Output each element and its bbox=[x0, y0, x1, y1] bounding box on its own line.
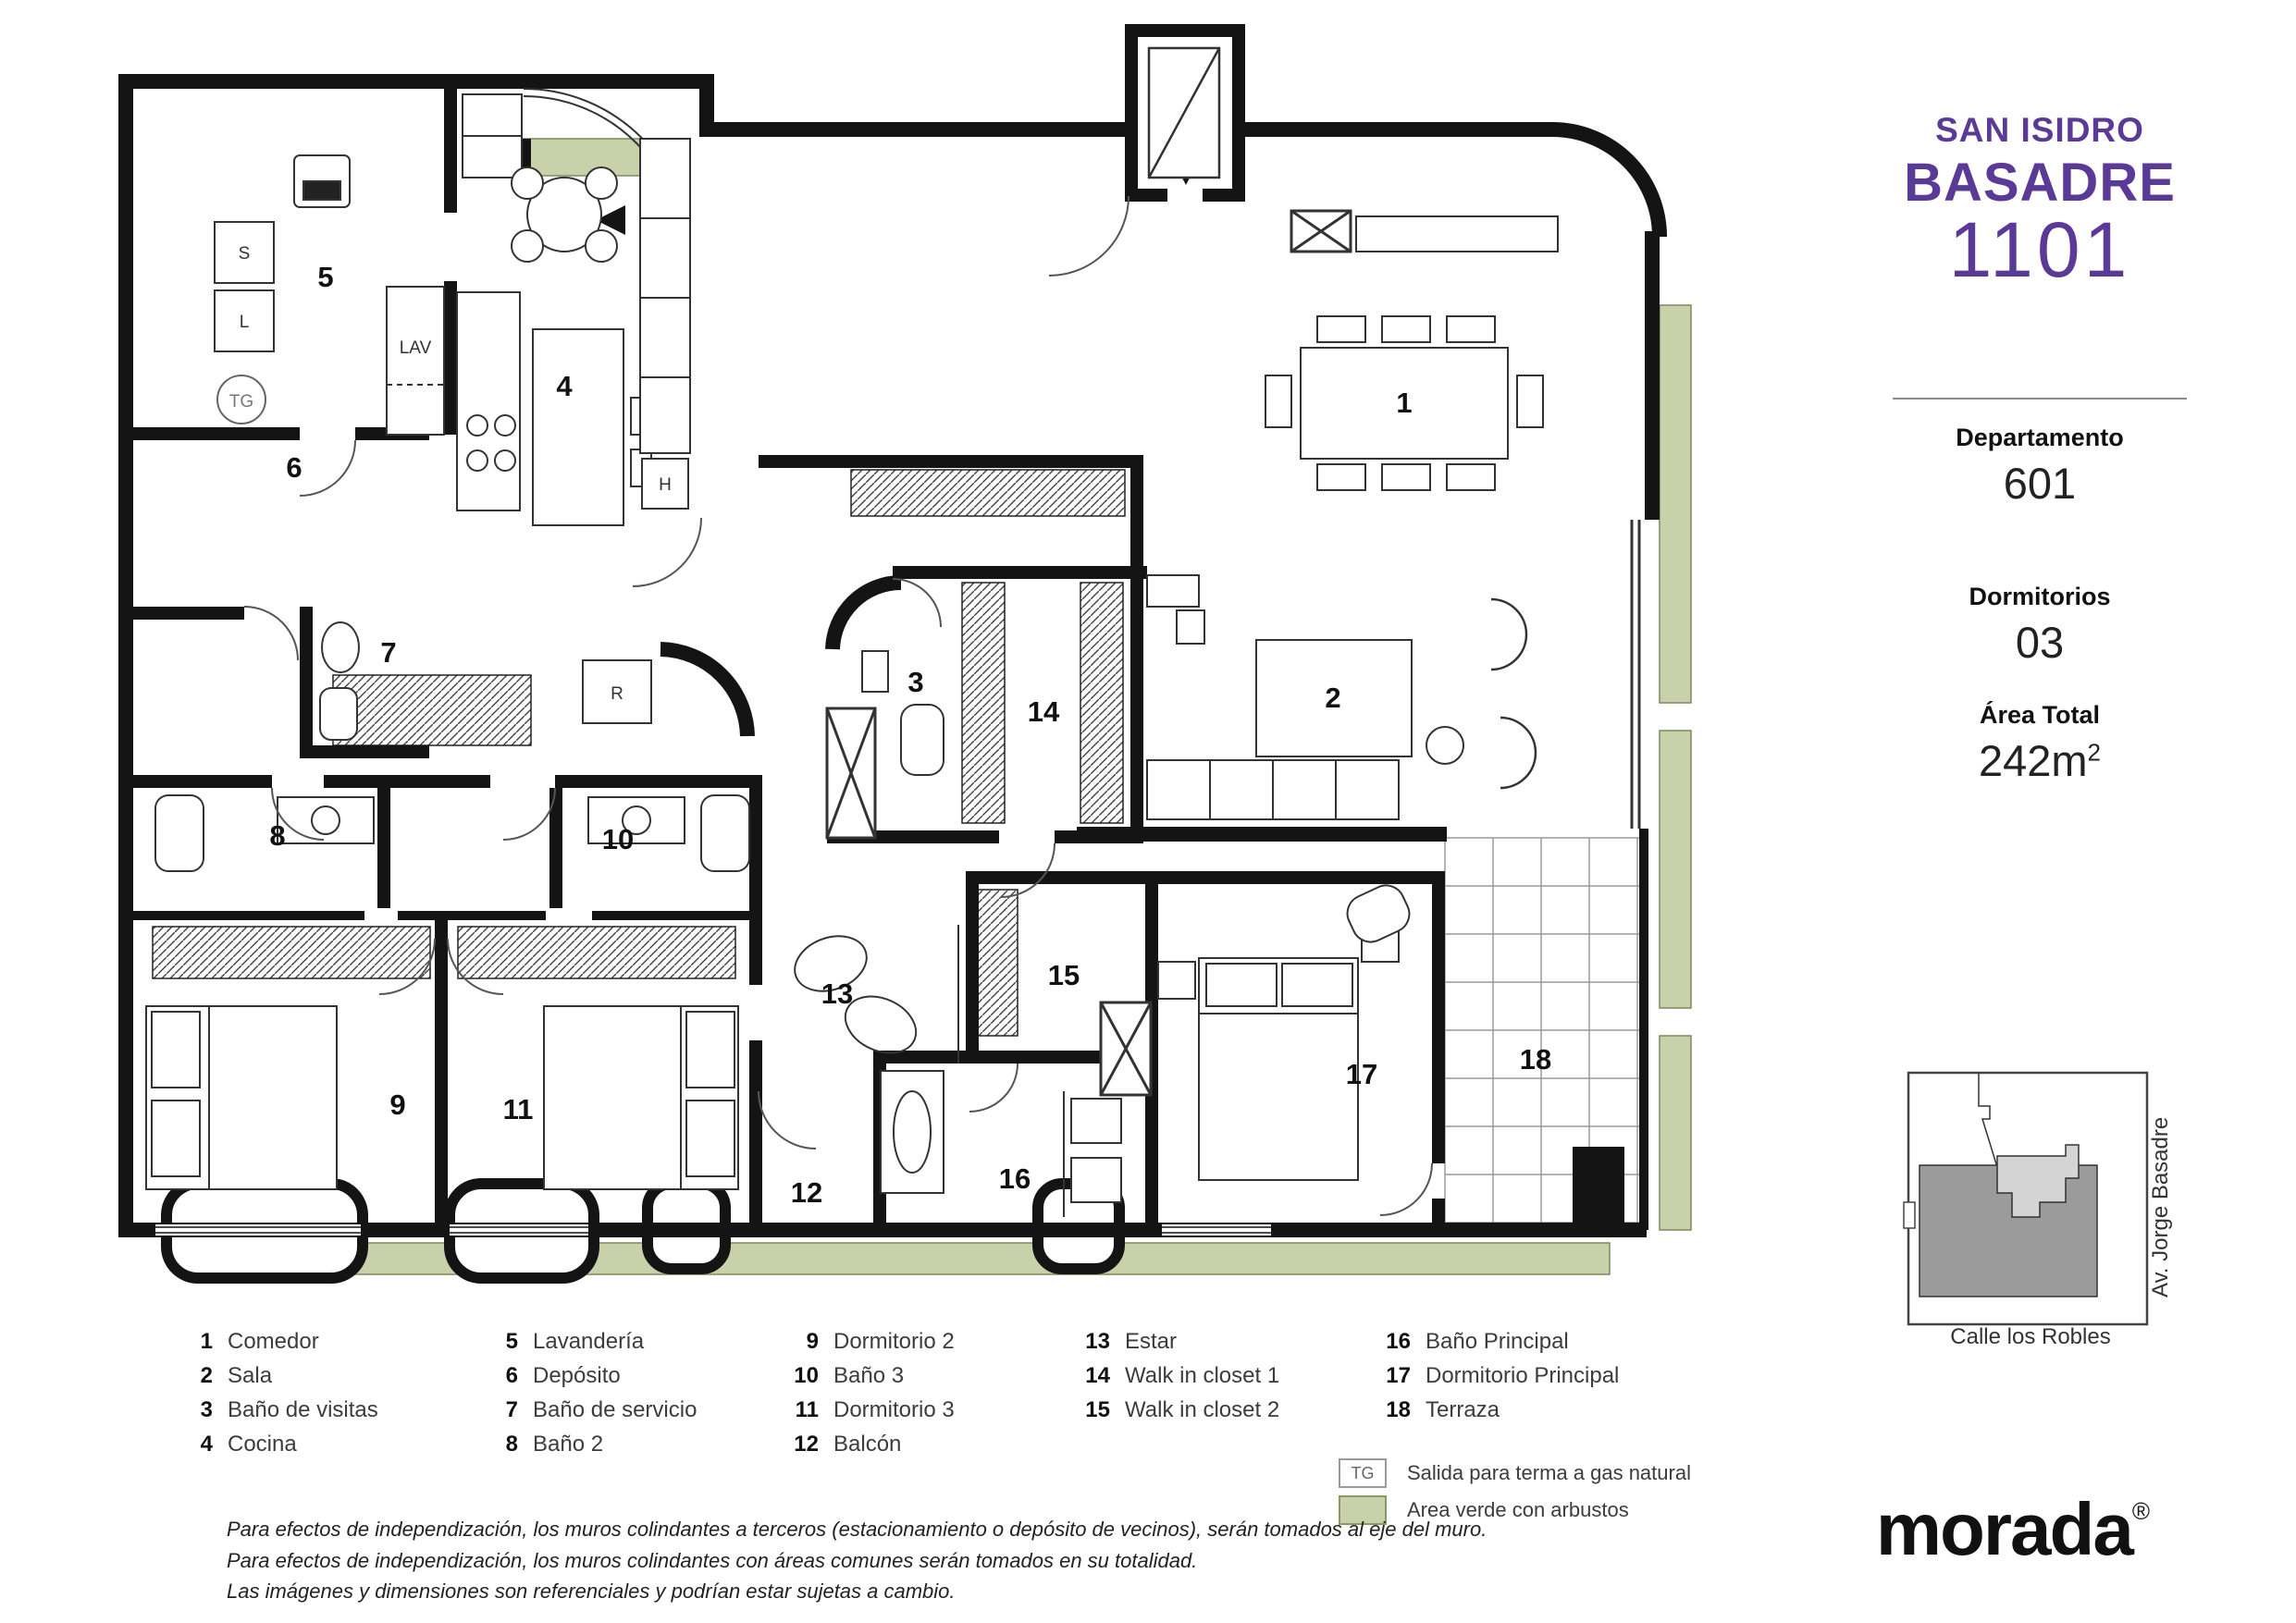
legend-item: 7Baño de servicio bbox=[481, 1397, 697, 1432]
room-number-7: 7 bbox=[380, 636, 396, 669]
legend-item-number: 11 bbox=[782, 1397, 819, 1423]
room-number-13: 13 bbox=[821, 977, 853, 1010]
legend-item-label: Baño Principal bbox=[1426, 1329, 1569, 1355]
legend-item-label: Dormitorio 2 bbox=[833, 1329, 955, 1355]
legend-item-number: 6 bbox=[481, 1363, 518, 1389]
fixture-label-tg: TG bbox=[229, 392, 253, 412]
furniture bbox=[146, 94, 1558, 1217]
legend-column: 5Lavandería6Depósito7Baño de servicio8Ba… bbox=[481, 1329, 697, 1466]
legend-item-number: 7 bbox=[481, 1397, 518, 1423]
legend-item-number: 13 bbox=[1073, 1329, 1110, 1355]
legend-item-label: Walk in closet 1 bbox=[1125, 1363, 1279, 1389]
info-value: 601 bbox=[1887, 458, 2192, 509]
room-number-5: 5 bbox=[317, 261, 333, 293]
project-name: BASADRE bbox=[1887, 152, 2192, 214]
room-number-4: 4 bbox=[556, 370, 573, 402]
legend-item: 9Dormitorio 2 bbox=[782, 1329, 955, 1363]
info-label: Área Total bbox=[1887, 701, 2192, 730]
symbol-label: Salida para terma a gas natural bbox=[1407, 1461, 1691, 1485]
legend-item-number: 3 bbox=[176, 1397, 213, 1423]
legend-item-label: Terraza bbox=[1426, 1397, 1500, 1423]
walls bbox=[118, 24, 1660, 1237]
legend-item-label: Comedor bbox=[228, 1329, 319, 1355]
legend-item-label: Baño de visitas bbox=[228, 1397, 378, 1423]
project-location: SAN ISIDRO bbox=[1887, 111, 2192, 150]
room-number-17: 17 bbox=[1346, 1058, 1377, 1090]
room-number-6: 6 bbox=[286, 451, 302, 484]
legend-item-label: Estar bbox=[1125, 1329, 1177, 1355]
legend-item-label: Lavandería bbox=[533, 1329, 644, 1355]
legend-column: 13Estar14Walk in closet 115Walk in close… bbox=[1073, 1329, 1279, 1432]
brand-logo: morada® bbox=[1876, 1487, 2148, 1572]
legend-item-number: 9 bbox=[782, 1329, 819, 1355]
panel-divider bbox=[1893, 398, 2187, 400]
info-value: 03 bbox=[1887, 617, 2192, 668]
fixture-label-l: L bbox=[240, 313, 250, 332]
room-number-16: 16 bbox=[999, 1162, 1031, 1195]
room-number-8: 8 bbox=[269, 819, 285, 852]
legend-item-label: Walk in closet 2 bbox=[1125, 1397, 1279, 1423]
legend-item: 18Terraza bbox=[1374, 1397, 1619, 1432]
disclaimer-line: Para efectos de independización, los mur… bbox=[227, 1517, 1522, 1543]
legend-item: 8Baño 2 bbox=[481, 1432, 697, 1466]
room-number-10: 10 bbox=[602, 823, 634, 855]
legend-item: 11Dormitorio 3 bbox=[782, 1397, 955, 1432]
legend-item: 13Estar bbox=[1073, 1329, 1279, 1363]
legend-item-number: 2 bbox=[176, 1363, 213, 1389]
legend-item: 5Lavandería bbox=[481, 1329, 697, 1363]
info-area-total: Área Total 242m2 bbox=[1887, 701, 2192, 786]
room-number-18: 18 bbox=[1520, 1043, 1551, 1076]
legend-item-label: Balcón bbox=[833, 1432, 901, 1457]
legend-item-label: Baño 2 bbox=[533, 1432, 603, 1457]
room-number-12: 12 bbox=[791, 1176, 822, 1209]
disclaimer-line: Para efectos de independización, los mur… bbox=[227, 1548, 1522, 1574]
legend-item: 6Depósito bbox=[481, 1363, 697, 1397]
map-street-right: Av. Jorge Basadre bbox=[2148, 1091, 2176, 1322]
floorplan-sheet: 123456789101112131415161718 SLTGLAVHR SA… bbox=[0, 0, 2296, 1623]
legend-column: 1Comedor2Sala3Baño de visitas4Cocina bbox=[176, 1329, 378, 1466]
room-number-9: 9 bbox=[389, 1088, 405, 1121]
map-street-bottom: Calle los Robles bbox=[1906, 1324, 2155, 1350]
closet-hatch bbox=[153, 470, 1125, 1036]
legend-item-label: Dormitorio Principal bbox=[1426, 1363, 1619, 1389]
legend-item-label: Dormitorio 3 bbox=[833, 1397, 955, 1423]
elevator bbox=[1149, 48, 1219, 178]
room-number-14: 14 bbox=[1028, 695, 1060, 728]
legend-item: 17Dormitorio Principal bbox=[1374, 1363, 1619, 1397]
legend-item-number: 15 bbox=[1073, 1397, 1110, 1423]
terrace-planter bbox=[1573, 1147, 1624, 1224]
fixture-label-r: R bbox=[611, 684, 623, 704]
room-number-2: 2 bbox=[1325, 682, 1340, 714]
legend-item-label: Sala bbox=[228, 1363, 272, 1389]
legend-item-label: Baño de servicio bbox=[533, 1397, 697, 1423]
symbol-row-tg: TGSalida para terma a gas natural bbox=[1339, 1457, 1691, 1490]
tg-swatch: TG bbox=[1339, 1458, 1387, 1488]
legend-item-label: Cocina bbox=[228, 1432, 297, 1457]
room-number-15: 15 bbox=[1048, 959, 1080, 991]
fixture-label-lav: LAV bbox=[400, 338, 432, 358]
legend-item-number: 16 bbox=[1374, 1329, 1411, 1355]
legend-column: 16Baño Principal17Dormitorio Principal18… bbox=[1374, 1329, 1619, 1432]
legend-item: 12Balcón bbox=[782, 1432, 955, 1466]
legend-item-number: 17 bbox=[1374, 1363, 1411, 1389]
legend-item-number: 18 bbox=[1374, 1397, 1411, 1423]
legend-item-number: 12 bbox=[782, 1432, 819, 1457]
project-number: 1101 bbox=[1887, 214, 2192, 288]
legend-item: 3Baño de visitas bbox=[176, 1397, 378, 1432]
legend-item: 16Baño Principal bbox=[1374, 1329, 1619, 1363]
legend-item-number: 4 bbox=[176, 1432, 213, 1457]
info-dormitorios: Dormitorios 03 bbox=[1887, 583, 2192, 668]
windows bbox=[1632, 520, 1639, 829]
legend-item: 1Comedor bbox=[176, 1329, 378, 1363]
info-departamento: Departamento 601 bbox=[1887, 424, 2192, 509]
info-label: Departamento bbox=[1887, 424, 2192, 452]
title-block: SAN ISIDRO BASADRE 1101 bbox=[1887, 111, 2192, 288]
legend-item-number: 10 bbox=[782, 1363, 819, 1389]
legend-item-number: 1 bbox=[176, 1329, 213, 1355]
legend-item: 10Baño 3 bbox=[782, 1363, 955, 1397]
legend-item-number: 5 bbox=[481, 1329, 518, 1355]
fixture-label-s: S bbox=[239, 244, 251, 264]
fixture-label-h: H bbox=[659, 475, 672, 495]
legend-item: 15Walk in closet 2 bbox=[1073, 1397, 1279, 1432]
legend-item-label: Depósito bbox=[533, 1363, 621, 1389]
info-value: 242m2 bbox=[1887, 735, 2192, 786]
legend-item: 2Sala bbox=[176, 1363, 378, 1397]
info-label: Dormitorios bbox=[1887, 583, 2192, 611]
disclaimer-text: Para efectos de independización, los mur… bbox=[227, 1517, 1522, 1610]
legend-item: 4Cocina bbox=[176, 1432, 378, 1466]
legend-column: 9Dormitorio 210Baño 311Dormitorio 312Bal… bbox=[782, 1329, 955, 1466]
room-number-1: 1 bbox=[1396, 387, 1412, 419]
floor-plan: 123456789101112131415161718 SLTGLAVHR bbox=[0, 0, 1758, 1313]
room-number-11: 11 bbox=[503, 1093, 534, 1125]
legend-item-number: 8 bbox=[481, 1432, 518, 1457]
room-number-3: 3 bbox=[907, 666, 923, 698]
legend-item-number: 14 bbox=[1073, 1363, 1110, 1389]
legend-item: 14Walk in closet 1 bbox=[1073, 1363, 1279, 1397]
legend-item-label: Baño 3 bbox=[833, 1363, 904, 1389]
disclaimer-line: Las imágenes y dimensiones son referenci… bbox=[227, 1579, 1522, 1605]
